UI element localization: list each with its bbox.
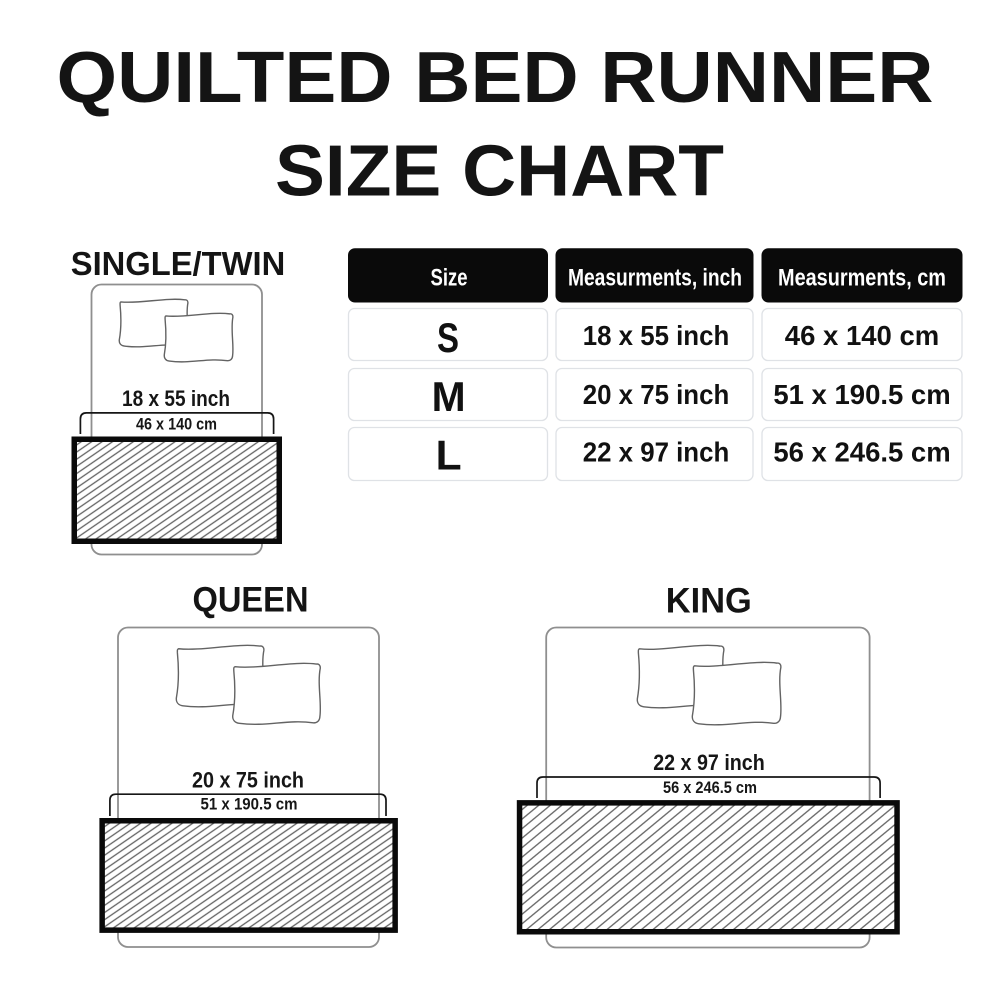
svg-text:56 x 246.5 cm: 56 x 246.5 cm [663,778,757,797]
svg-text:18 x 55 inch: 18 x 55 inch [583,320,730,351]
svg-text:Measurments, cm: Measurments, cm [778,265,946,292]
svg-text:SIZE CHART: SIZE CHART [275,132,724,212]
svg-text:QUEEN: QUEEN [193,581,309,620]
svg-text:SINGLE/TWIN: SINGLE/TWIN [71,245,286,282]
svg-text:18 x 55 inch: 18 x 55 inch [122,386,230,411]
svg-text:KING: KING [666,582,752,621]
svg-text:22 x 97 inch: 22 x 97 inch [653,750,765,775]
svg-text:L: L [436,432,462,479]
svg-text:M: M [432,373,466,420]
svg-text:QUILTED BED RUNNER: QUILTED BED RUNNER [57,38,934,118]
svg-text:56 x 246.5 cm: 56 x 246.5 cm [773,437,950,468]
svg-text:51 x 190.5 cm: 51 x 190.5 cm [773,379,950,410]
svg-text:Measurments, inch: Measurments, inch [568,265,742,292]
svg-text:20 x 75 inch: 20 x 75 inch [192,767,304,792]
svg-text:51 x 190.5 cm: 51 x 190.5 cm [201,795,298,814]
svg-text:46 x 140 cm: 46 x 140 cm [785,320,939,351]
svg-text:20 x 75 inch: 20 x 75 inch [583,379,730,410]
svg-text:S: S [437,314,459,361]
svg-text:Size: Size [431,265,468,292]
svg-text:22 x 97 inch: 22 x 97 inch [583,437,730,468]
svg-text:46 x 140 cm: 46 x 140 cm [136,415,217,434]
